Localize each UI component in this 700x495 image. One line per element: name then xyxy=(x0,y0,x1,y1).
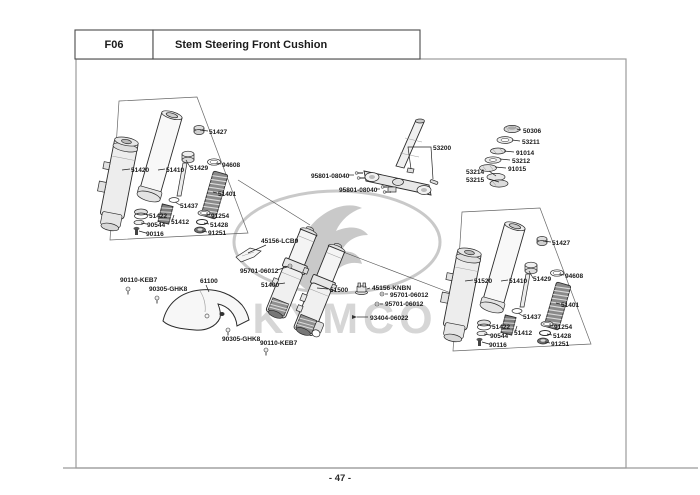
oil-lock-piece xyxy=(195,227,206,233)
page-title: Stem Steering Front Cushion xyxy=(175,39,327,51)
part-label-94608-right: 94608 xyxy=(565,273,583,280)
part-label-91254-left: 91254 xyxy=(211,213,229,220)
part-label-51412-left: 51412 xyxy=(171,219,189,226)
screw-icon-left xyxy=(288,264,292,268)
screw-icon-right-2 xyxy=(375,302,379,306)
part-label-90305-ghk8-2: 90305-GHK8 xyxy=(222,336,261,343)
part-label-53215: 53215 xyxy=(466,177,484,184)
part-label-91251-left: 91251 xyxy=(208,230,226,237)
screw-icon-right-1 xyxy=(380,292,384,296)
part-label-91254-right: 91254 xyxy=(554,324,572,331)
fender-bolt xyxy=(220,312,225,316)
part-label-90110-keb7-1: 90110-KEB7 xyxy=(120,277,158,284)
part-label-45156-knbn: 45156-KNBN xyxy=(372,285,411,292)
part-label-51400: 51400 xyxy=(261,282,279,289)
part-label-51429-left: 51429 xyxy=(190,165,208,172)
part-label-53211: 53211 xyxy=(522,139,540,146)
part-label-91014: 91014 xyxy=(516,150,534,157)
part-label-90305-ghk8-1: 90305-GHK8 xyxy=(149,286,188,293)
part-label-51429-right: 51429 xyxy=(533,276,551,283)
part-label-51520: 51520 xyxy=(474,278,492,285)
top-cone-race xyxy=(491,148,506,154)
part-label-61100: 61100 xyxy=(200,278,218,285)
part-label-51401-left: 51401 xyxy=(218,191,236,198)
part-label-90544-right: 90544 xyxy=(490,333,508,340)
washer xyxy=(134,220,144,224)
part-label-51422-right: 51422 xyxy=(492,324,510,331)
part-label-51427-right: 51427 xyxy=(552,240,570,247)
part-label-53200: 53200 xyxy=(433,145,451,152)
part-label-90110-keb7-2: 90110-KEB7 xyxy=(260,340,298,347)
part-label-95701-06012-left: 95701-06012 xyxy=(240,268,279,275)
part-label-51422-left: 51422 xyxy=(149,213,167,220)
part-label-51410-left: 51410 xyxy=(166,167,184,174)
stem-clip xyxy=(407,168,414,173)
part-label-51410-right: 51410 xyxy=(509,278,527,285)
part-label-50306: 50306 xyxy=(523,128,541,135)
part-label-51428-right: 51428 xyxy=(553,333,571,340)
part-label-51401-right: 51401 xyxy=(561,302,579,309)
part-label-95701-06012-r2: 95701-06012 xyxy=(385,301,424,308)
part-label-95801-08040-1: 95801-08040 xyxy=(311,173,350,180)
part-label-53214: 53214 xyxy=(466,169,484,176)
part-label-90116-right: 90116 xyxy=(489,342,507,349)
part-label-95801-08040-2: 95801-08040 xyxy=(339,187,378,194)
part-label-45156-lcb9: 45156-LCB9 xyxy=(261,238,299,245)
part-label-93404-06022: 93404-06022 xyxy=(370,315,409,322)
page-number: - 47 - xyxy=(329,473,351,484)
part-label-51437-left: 51437 xyxy=(180,203,198,210)
part-label-95701-06012-r1: 95701-06012 xyxy=(390,292,429,299)
part-label-51412-right: 51412 xyxy=(514,330,532,337)
section-code: F06 xyxy=(105,39,124,51)
parts-diagram-page: F06 Stem Steering Front Cushion - 47 - K… xyxy=(0,0,700,495)
part-label-51428-left: 51428 xyxy=(210,222,228,229)
part-label-90544-left: 90544 xyxy=(147,222,165,229)
stopper-ring xyxy=(198,210,210,216)
part-label-90116-left: 90116 xyxy=(146,231,164,238)
part-label-51437-right: 51437 xyxy=(523,314,541,321)
part-label-91015: 91015 xyxy=(508,166,526,173)
part-label-51427-left: 51427 xyxy=(209,129,227,136)
part-label-51500: 51500 xyxy=(330,287,348,294)
part-label-94608-left: 94608 xyxy=(222,162,240,169)
content-frame xyxy=(76,59,626,468)
part-label-53212: 53212 xyxy=(512,158,530,165)
part-label-51420: 51420 xyxy=(131,167,149,174)
top-ball-race xyxy=(485,157,501,163)
thread-washer xyxy=(497,137,513,144)
part-label-91251-right: 91251 xyxy=(551,341,569,348)
